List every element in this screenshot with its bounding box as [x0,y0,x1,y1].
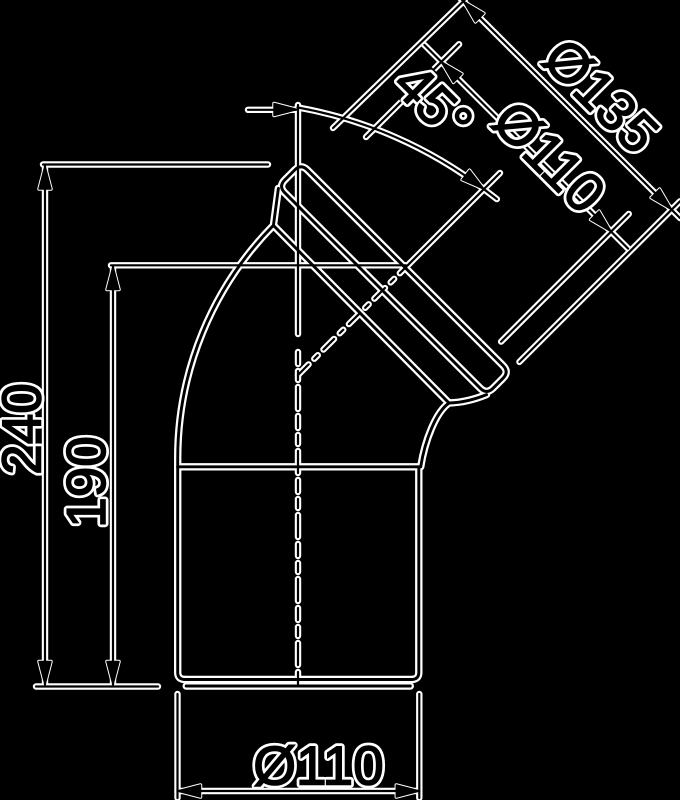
svg-text:190: 190 [55,436,117,528]
svg-text:Ø110: Ø110 [253,735,383,797]
svg-text:240: 240 [0,383,53,475]
